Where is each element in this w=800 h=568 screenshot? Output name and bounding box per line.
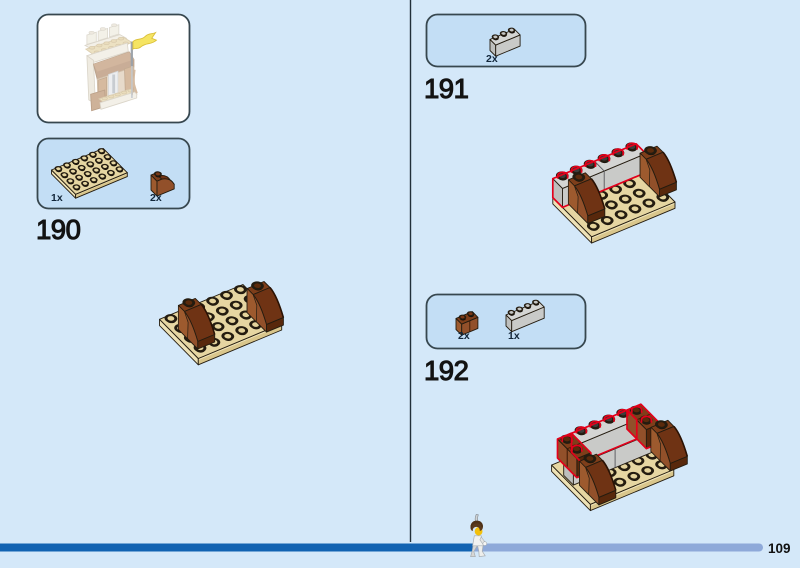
svg-text:2x: 2x: [486, 53, 498, 65]
svg-text:2x: 2x: [458, 330, 470, 342]
svg-text:192: 192: [424, 355, 468, 386]
svg-text:1x: 1x: [51, 192, 63, 204]
svg-text:109: 109: [768, 541, 791, 556]
svg-text:1x: 1x: [508, 330, 520, 342]
svg-text:190: 190: [36, 214, 81, 245]
svg-text:2x: 2x: [150, 192, 162, 204]
svg-text:191: 191: [424, 73, 468, 104]
